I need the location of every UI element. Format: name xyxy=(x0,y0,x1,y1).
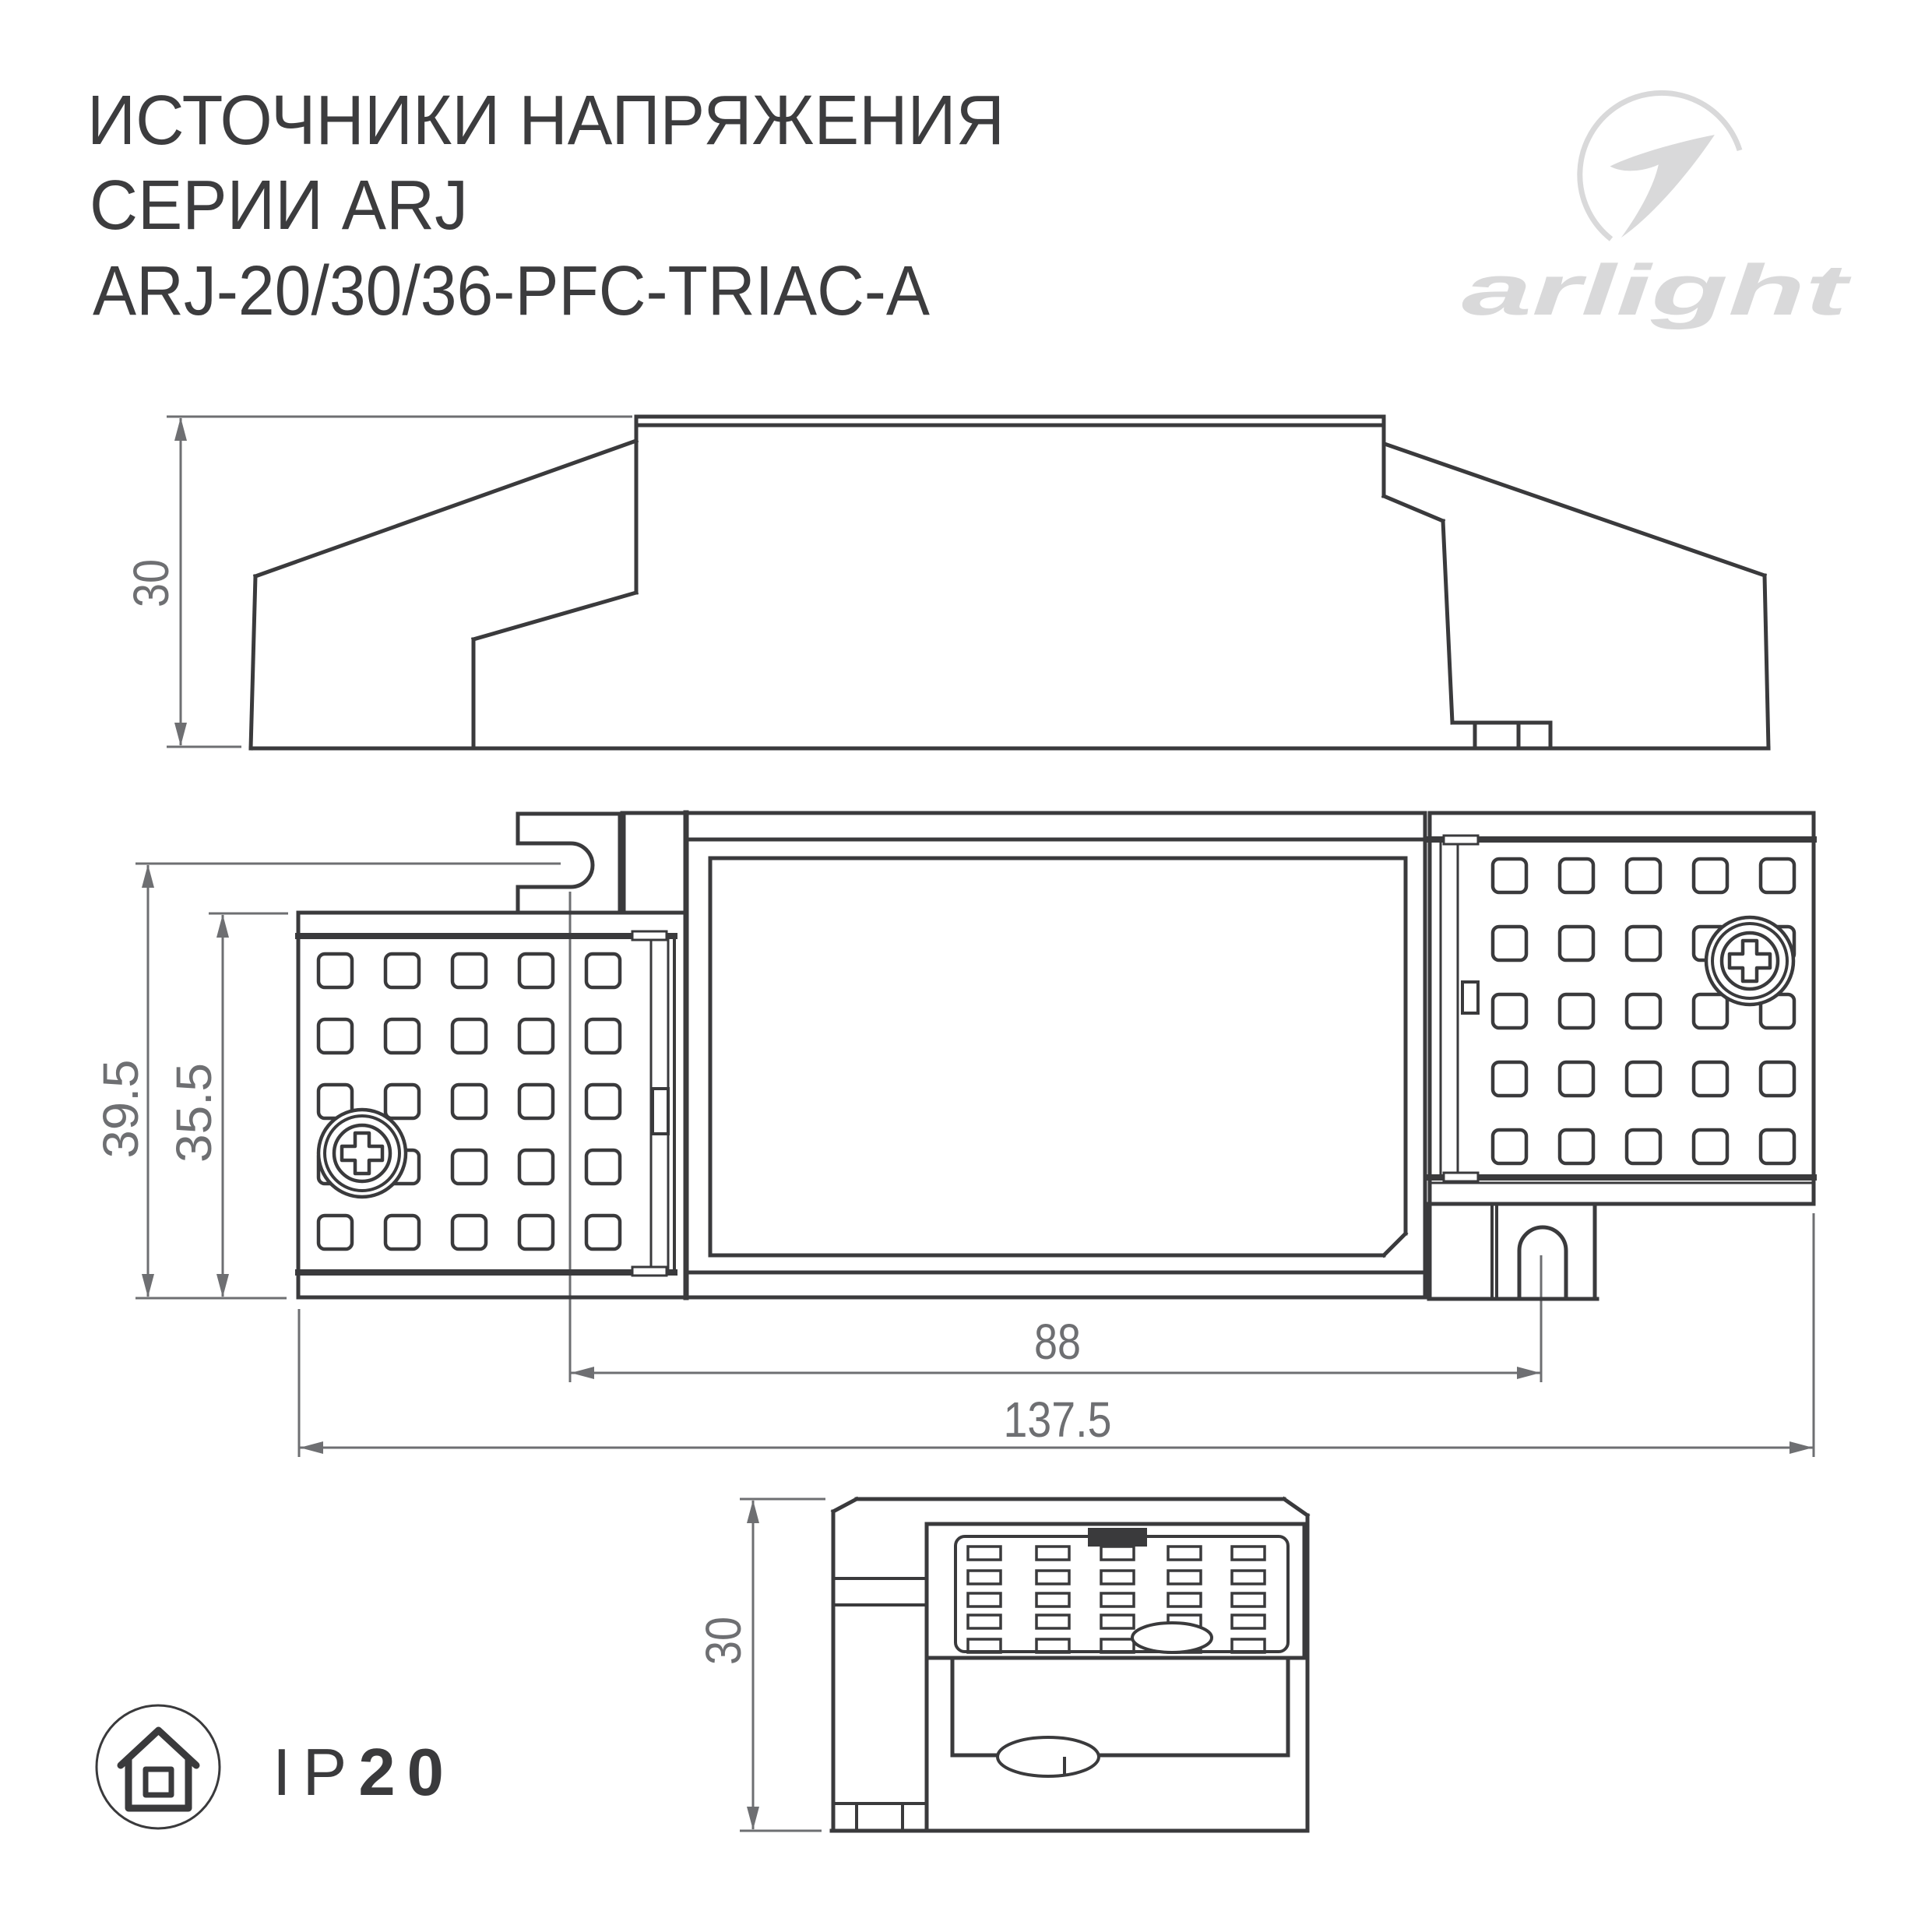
svg-text:39.5: 39.5 xyxy=(93,1060,149,1159)
svg-text:ARJ-20/30/36-PFC-TRIAC-A: ARJ-20/30/36-PFC-TRIAC-A xyxy=(93,252,930,330)
svg-text:30: 30 xyxy=(123,559,179,607)
svg-text:ИСТОЧНИКИ НАПРЯЖЕНИЯ: ИСТОЧНИКИ НАПРЯЖЕНИЯ xyxy=(87,82,1005,160)
svg-text:88: 88 xyxy=(1034,1314,1081,1370)
svg-text:IP20: IP20 xyxy=(273,1736,456,1810)
svg-text:arlight: arlight xyxy=(1462,251,1852,330)
svg-text:35.5: 35.5 xyxy=(166,1063,222,1163)
svg-text:30: 30 xyxy=(695,1617,751,1665)
svg-text:137.5: 137.5 xyxy=(1004,1392,1112,1448)
svg-text:СЕРИИ ARJ: СЕРИИ ARJ xyxy=(90,167,468,245)
